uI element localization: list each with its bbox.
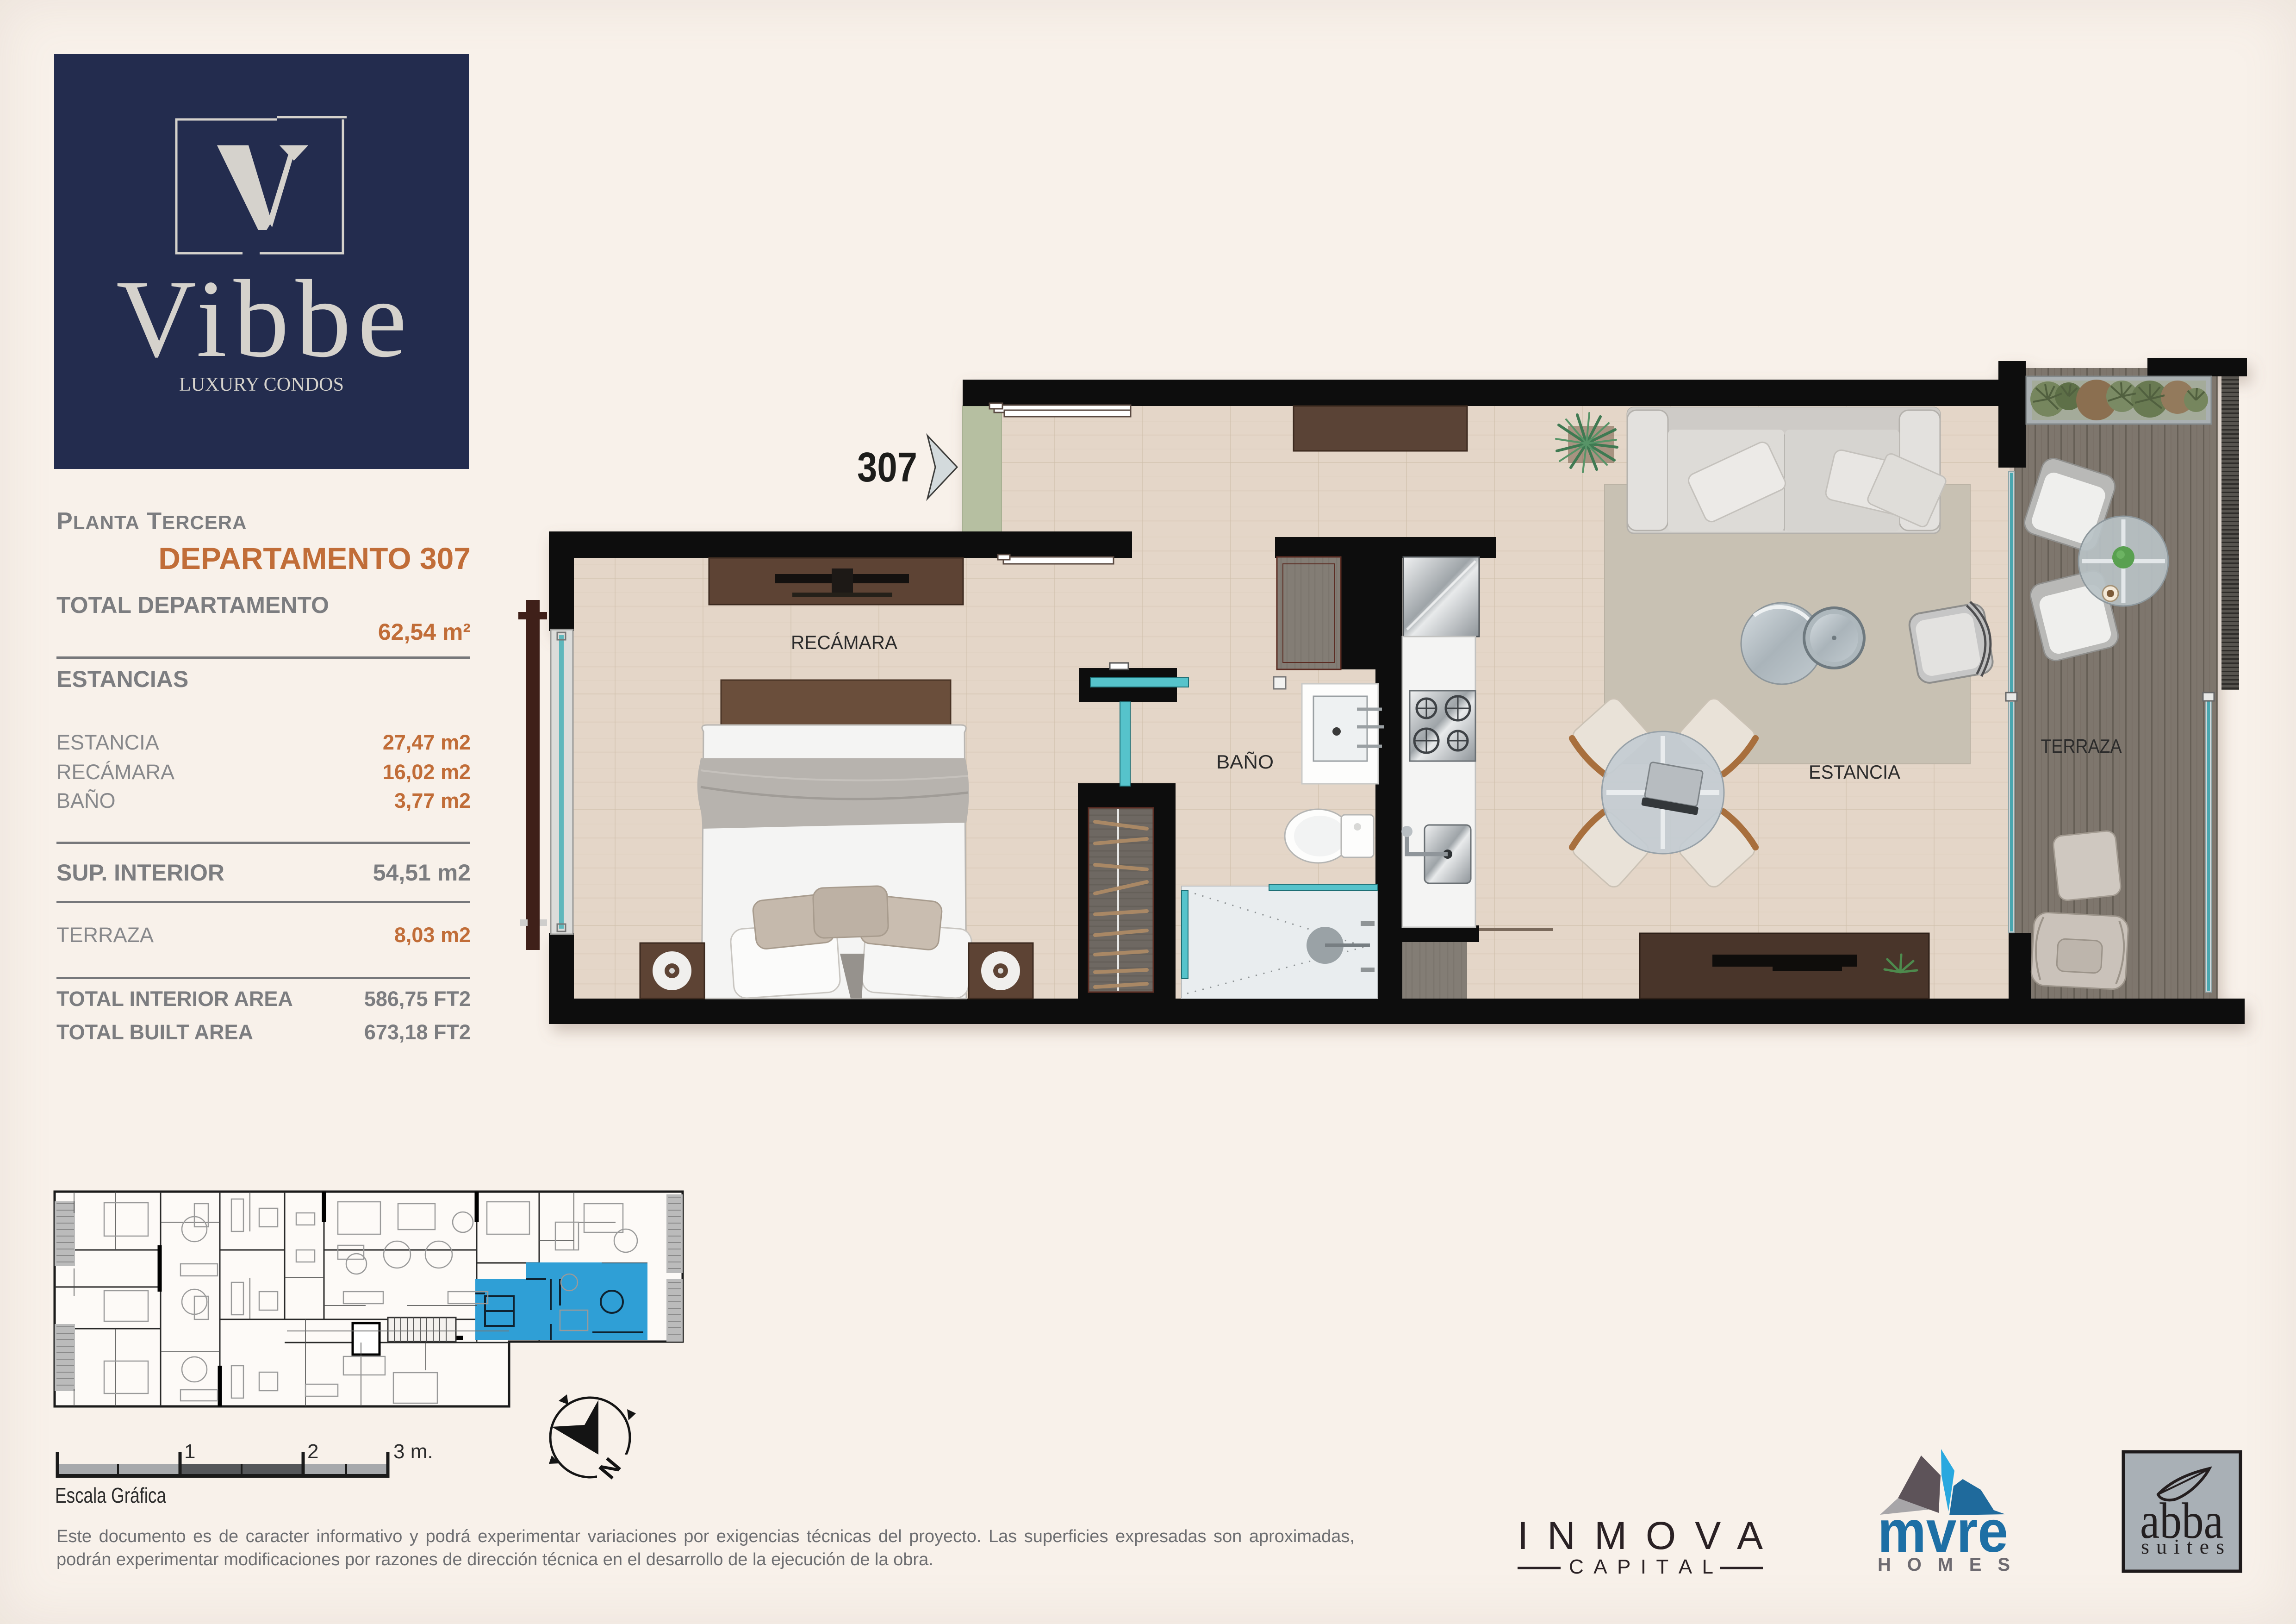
svg-text:TERRAZA: TERRAZA [2041,735,2122,757]
svg-text:ESTANCIA: ESTANCIA [1809,761,1900,783]
svg-text:INMOVA: INMOVA [1518,1514,1763,1557]
svg-text:3 m.: 3 m. [393,1440,433,1463]
svg-text:Escala Gráfica: Escala Gráfica [55,1483,166,1507]
svg-text:abba: abba [2140,1493,2223,1549]
svg-text:RECÁMARA: RECÁMARA [791,631,897,653]
svg-text:307: 307 [857,444,917,491]
svg-text:BAÑO: BAÑO [1216,751,1274,773]
svg-text:2: 2 [307,1440,318,1463]
svg-text:1: 1 [184,1440,195,1463]
svg-text:CΑPITΑL: CΑPITΑL [1569,1555,1713,1578]
